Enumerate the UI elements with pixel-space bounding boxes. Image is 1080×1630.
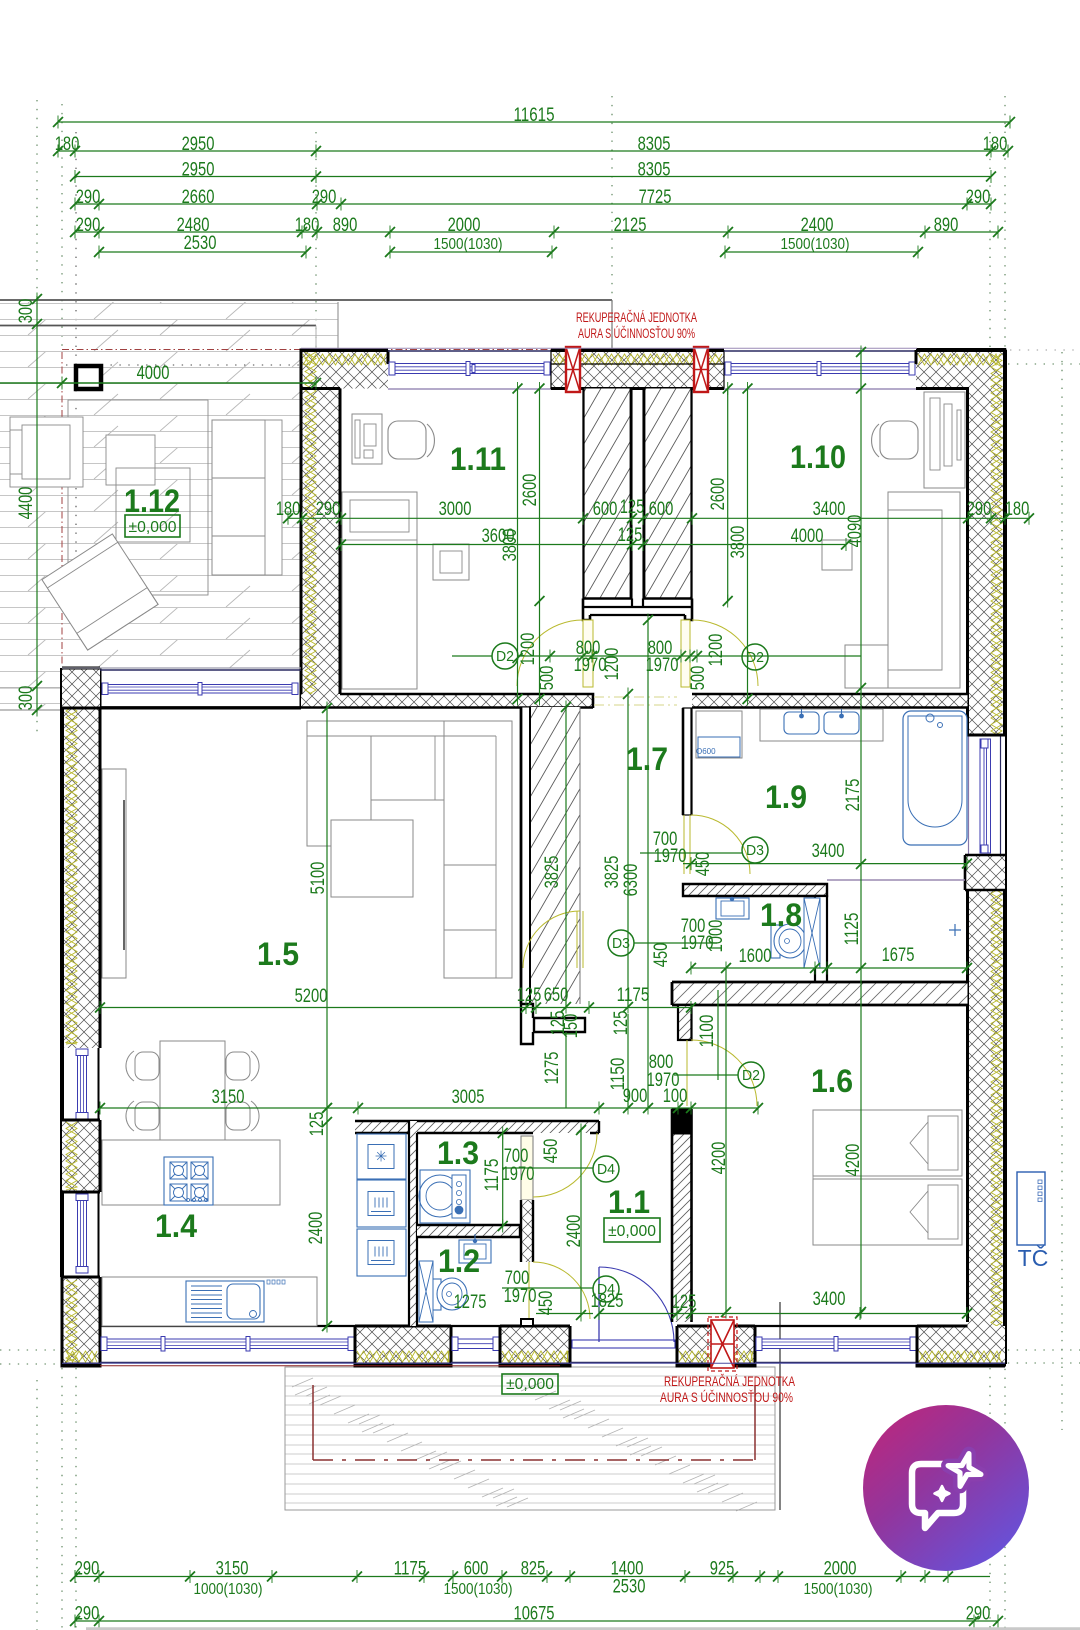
svg-text:1500(1030): 1500(1030) bbox=[434, 236, 503, 253]
svg-text:290: 290 bbox=[75, 1558, 100, 1580]
svg-text:290: 290 bbox=[76, 214, 101, 236]
svg-text:D3: D3 bbox=[746, 842, 764, 859]
svg-text:2400: 2400 bbox=[305, 1211, 327, 1244]
svg-text:1150: 1150 bbox=[607, 1057, 629, 1090]
svg-text:1970: 1970 bbox=[502, 1163, 535, 1185]
svg-text:290: 290 bbox=[75, 1603, 100, 1625]
svg-text:REKUPERAČNÁ JEDNOTKA: REKUPERAČNÁ JEDNOTKA bbox=[664, 1374, 795, 1389]
svg-text:1.11: 1.11 bbox=[450, 441, 506, 477]
svg-text:5100: 5100 bbox=[307, 861, 329, 894]
svg-text:4000: 4000 bbox=[791, 525, 824, 547]
svg-text:3150: 3150 bbox=[212, 1086, 245, 1108]
svg-text:125: 125 bbox=[672, 1291, 697, 1313]
svg-text:890: 890 bbox=[333, 214, 358, 236]
svg-text:2125: 2125 bbox=[614, 214, 647, 236]
svg-text:1175: 1175 bbox=[617, 984, 650, 1006]
svg-text:3000: 3000 bbox=[439, 498, 472, 520]
svg-text:3005: 3005 bbox=[452, 1086, 485, 1108]
svg-text:1970: 1970 bbox=[654, 845, 687, 867]
svg-text:4200: 4200 bbox=[708, 1141, 730, 1174]
svg-text:11615: 11615 bbox=[514, 104, 555, 126]
svg-text:600: 600 bbox=[649, 498, 674, 520]
svg-text:1.7: 1.7 bbox=[626, 741, 668, 777]
svg-text:D2: D2 bbox=[746, 649, 764, 666]
svg-text:1500(1030): 1500(1030) bbox=[444, 1581, 513, 1598]
svg-text:125: 125 bbox=[517, 984, 542, 1006]
svg-text:1000: 1000 bbox=[705, 919, 727, 952]
svg-text:1200: 1200 bbox=[517, 632, 539, 665]
svg-text:2175: 2175 bbox=[842, 778, 864, 811]
svg-text:7725: 7725 bbox=[639, 186, 672, 208]
svg-text:1500(1030): 1500(1030) bbox=[781, 236, 850, 253]
svg-text:290: 290 bbox=[966, 186, 991, 208]
svg-text:290: 290 bbox=[966, 1603, 991, 1625]
svg-text:4200: 4200 bbox=[842, 1143, 864, 1176]
svg-text:8305: 8305 bbox=[638, 159, 671, 181]
svg-text:1275: 1275 bbox=[541, 1051, 563, 1084]
svg-text:450: 450 bbox=[540, 1139, 562, 1164]
svg-text:3800: 3800 bbox=[727, 525, 749, 558]
svg-text:2950: 2950 bbox=[182, 159, 215, 181]
svg-text:1.4: 1.4 bbox=[155, 1208, 197, 1244]
svg-text:±0,000: ±0,000 bbox=[608, 1223, 656, 1240]
svg-text:600: 600 bbox=[464, 1558, 489, 1580]
svg-text:180: 180 bbox=[295, 214, 320, 236]
svg-text:290: 290 bbox=[316, 498, 341, 520]
svg-text:D3: D3 bbox=[612, 935, 630, 952]
svg-text:1175: 1175 bbox=[394, 1558, 427, 1580]
svg-text:180: 180 bbox=[1005, 498, 1030, 520]
svg-text:10675: 10675 bbox=[514, 1603, 555, 1625]
svg-text:2000: 2000 bbox=[448, 214, 481, 236]
svg-text:3400: 3400 bbox=[813, 498, 846, 520]
svg-text:4000: 4000 bbox=[137, 362, 170, 384]
svg-text:2000: 2000 bbox=[824, 1558, 857, 1580]
svg-text:REKUPERAČNÁ JEDNOTKA: REKUPERAČNÁ JEDNOTKA bbox=[576, 310, 697, 325]
svg-text:3400: 3400 bbox=[813, 1288, 846, 1310]
svg-text:1125: 1125 bbox=[841, 912, 863, 945]
svg-text:D4: D4 bbox=[597, 1161, 615, 1178]
svg-text:1600: 1600 bbox=[739, 945, 772, 967]
svg-text:2400: 2400 bbox=[801, 214, 834, 236]
svg-text:2660: 2660 bbox=[182, 186, 215, 208]
svg-text:✳: ✳ bbox=[375, 1149, 388, 1166]
svg-text:1.1: 1.1 bbox=[608, 1184, 650, 1220]
svg-text:180: 180 bbox=[276, 498, 301, 520]
svg-text:1500(1030): 1500(1030) bbox=[804, 1581, 873, 1598]
svg-text:4090: 4090 bbox=[844, 514, 866, 547]
svg-text:150: 150 bbox=[560, 1014, 582, 1039]
svg-text:300: 300 bbox=[15, 686, 37, 711]
svg-text:3150: 3150 bbox=[216, 1558, 249, 1580]
svg-text:AURA S ÚČINNOSŤOU 90%: AURA S ÚČINNOSŤOU 90% bbox=[660, 1390, 793, 1405]
svg-text:180: 180 bbox=[983, 133, 1008, 155]
svg-text:1175: 1175 bbox=[481, 1158, 503, 1191]
svg-text:1200: 1200 bbox=[705, 633, 727, 666]
svg-text:650: 650 bbox=[544, 984, 569, 1006]
svg-text:1970: 1970 bbox=[504, 1285, 537, 1307]
svg-text:3825: 3825 bbox=[541, 855, 563, 888]
svg-text:290: 290 bbox=[967, 498, 992, 520]
svg-text:1675: 1675 bbox=[882, 944, 915, 966]
svg-text:1.3: 1.3 bbox=[437, 1135, 479, 1171]
svg-text:925: 925 bbox=[710, 1558, 735, 1580]
svg-text:2400: 2400 bbox=[563, 1214, 585, 1247]
svg-text:180: 180 bbox=[55, 133, 80, 155]
svg-text:2600: 2600 bbox=[519, 473, 541, 506]
svg-text:1100: 1100 bbox=[696, 1014, 718, 1047]
svg-text:1.5: 1.5 bbox=[257, 936, 299, 972]
svg-text:±0,000: ±0,000 bbox=[506, 1376, 554, 1393]
svg-text:450: 450 bbox=[692, 852, 714, 877]
svg-text:125: 125 bbox=[620, 496, 645, 518]
svg-text:2530: 2530 bbox=[613, 1576, 646, 1598]
svg-text:450: 450 bbox=[650, 943, 672, 968]
svg-text:5200: 5200 bbox=[295, 985, 328, 1007]
svg-text:1970: 1970 bbox=[646, 654, 679, 676]
svg-text:3400: 3400 bbox=[812, 840, 845, 862]
svg-text:D2: D2 bbox=[496, 648, 514, 665]
svg-text:1970: 1970 bbox=[574, 654, 607, 676]
svg-text:1970: 1970 bbox=[647, 1069, 680, 1091]
svg-text:TČ: TČ bbox=[1018, 1244, 1049, 1271]
svg-text:±0,000: ±0,000 bbox=[129, 519, 177, 536]
svg-text:3800: 3800 bbox=[499, 528, 521, 561]
svg-text:290: 290 bbox=[312, 186, 337, 208]
svg-text:4400: 4400 bbox=[15, 486, 37, 519]
svg-text:6300: 6300 bbox=[620, 863, 642, 896]
svg-text:1000(1030): 1000(1030) bbox=[194, 1581, 263, 1598]
svg-text:500: 500 bbox=[687, 666, 709, 691]
svg-text:125: 125 bbox=[618, 524, 643, 546]
svg-text:2530: 2530 bbox=[184, 232, 217, 254]
svg-text:290: 290 bbox=[76, 186, 101, 208]
svg-text:450: 450 bbox=[535, 1291, 557, 1316]
svg-text:8305: 8305 bbox=[638, 133, 671, 155]
svg-text:500: 500 bbox=[536, 666, 558, 691]
svg-text:D2: D2 bbox=[742, 1067, 760, 1084]
svg-text:890: 890 bbox=[934, 214, 959, 236]
svg-text:1.2: 1.2 bbox=[438, 1243, 480, 1279]
svg-text:125: 125 bbox=[306, 1112, 328, 1137]
svg-text:825: 825 bbox=[521, 1558, 546, 1580]
svg-text:1.9: 1.9 bbox=[765, 779, 807, 815]
svg-text:1825: 1825 bbox=[591, 1290, 624, 1312]
svg-text:300: 300 bbox=[15, 299, 37, 324]
svg-text:1.12: 1.12 bbox=[124, 483, 180, 519]
svg-text:1.6: 1.6 bbox=[811, 1063, 853, 1099]
svg-text:1.10: 1.10 bbox=[790, 439, 846, 475]
svg-text:AURA S ÚČINNOSŤOU 90%: AURA S ÚČINNOSŤOU 90% bbox=[578, 326, 695, 341]
svg-text:1275: 1275 bbox=[454, 1291, 487, 1313]
svg-text:1.8: 1.8 bbox=[760, 897, 802, 933]
svg-text:2950: 2950 bbox=[182, 133, 215, 155]
svg-text:O600: O600 bbox=[696, 747, 716, 756]
svg-text:600: 600 bbox=[593, 498, 618, 520]
svg-text:2600: 2600 bbox=[707, 477, 729, 510]
